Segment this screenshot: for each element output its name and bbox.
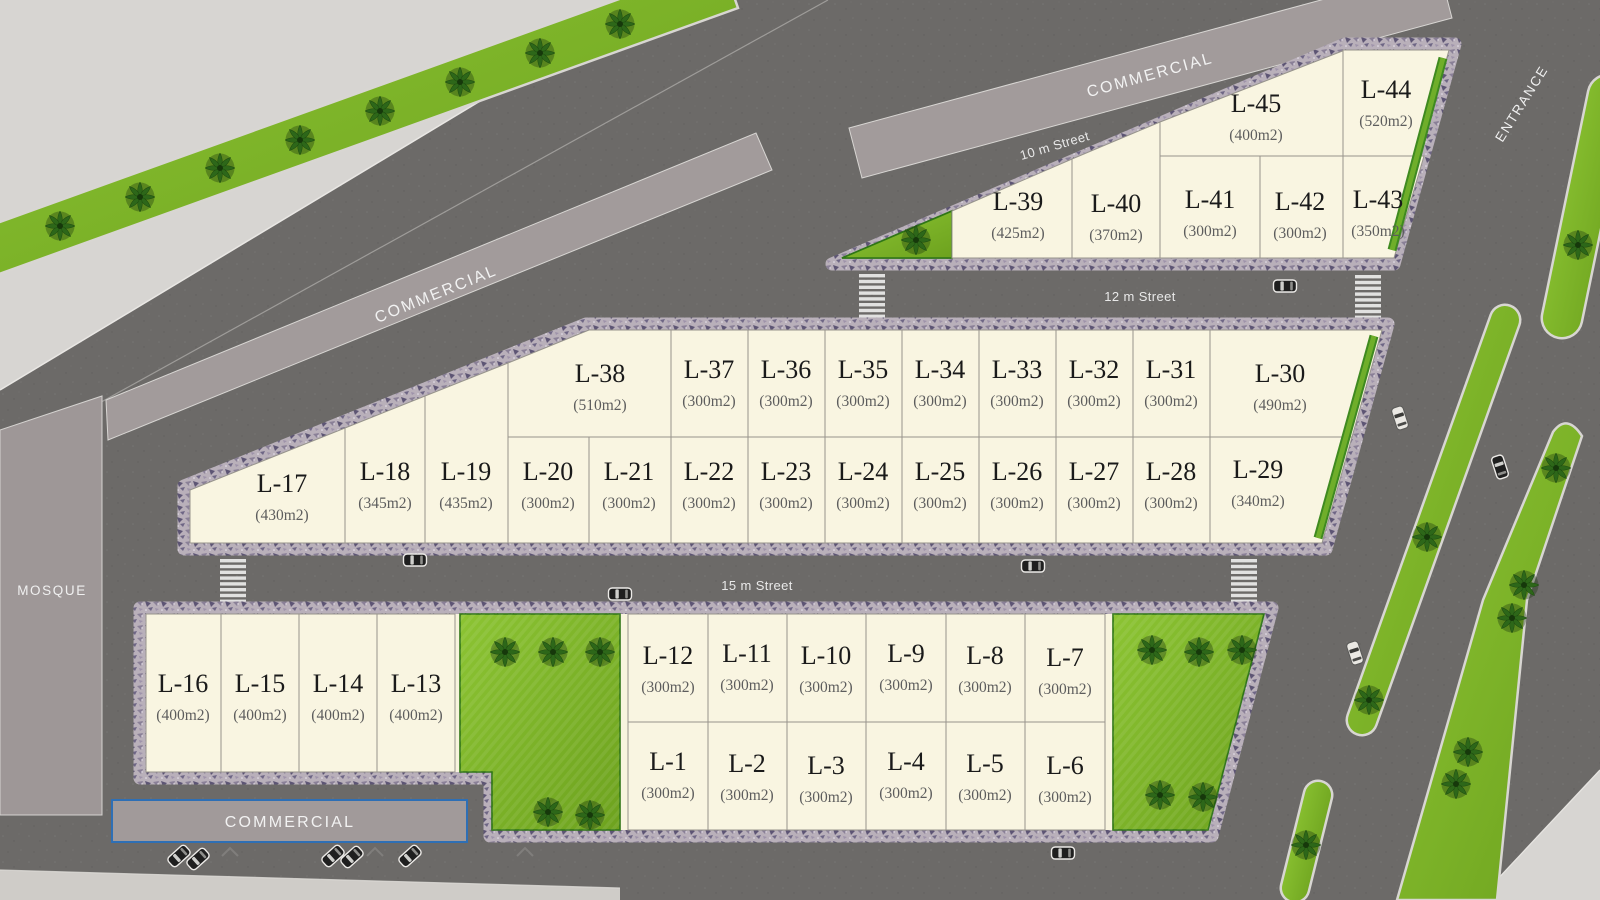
lot-l1-name: L-1	[649, 747, 687, 776]
lot-l7-name: L-7	[1046, 643, 1084, 672]
lot-l4[interactable]	[866, 722, 946, 830]
lot-l45-name: L-45	[1231, 89, 1282, 118]
car-icon	[1052, 847, 1075, 859]
lot-l28[interactable]	[1133, 437, 1210, 543]
lot-l4-name: L-4	[887, 747, 925, 776]
lot-l28-name: L-28	[1146, 457, 1197, 486]
lot-l8-name: L-8	[966, 641, 1004, 670]
lot-l25-name: L-25	[915, 457, 966, 486]
lot-l27[interactable]	[1056, 437, 1133, 543]
lot-l5-area: (300m2)	[958, 787, 1011, 804]
lot-l9-name: L-9	[887, 639, 925, 668]
lot-l16-name: L-16	[158, 669, 209, 698]
lot-l38-area: (510m2)	[573, 397, 626, 414]
lot-l9-area: (300m2)	[879, 677, 932, 694]
lot-l24-area: (300m2)	[836, 495, 889, 512]
lot-l25-area: (300m2)	[913, 495, 966, 512]
lot-l18-area: (345m2)	[358, 495, 411, 512]
lot-l28-area: (300m2)	[1144, 495, 1197, 512]
lot-l20-name: L-20	[523, 457, 574, 486]
lot-l20-area: (300m2)	[521, 495, 574, 512]
lot-l2-area: (300m2)	[720, 787, 773, 804]
lot-l11-name: L-11	[722, 639, 772, 668]
lot-l34-name: L-34	[915, 355, 966, 384]
lot-l5-name: L-5	[966, 749, 1004, 778]
lot-l21-name: L-21	[604, 457, 655, 486]
lot-l36-name: L-36	[761, 355, 812, 384]
lot-l33-area: (300m2)	[990, 393, 1043, 410]
lot-l20[interactable]	[508, 437, 589, 543]
lot-l39-name: L-39	[993, 187, 1044, 216]
lot-l30-name: L-30	[1255, 359, 1306, 388]
lot-l10-area: (300m2)	[799, 679, 852, 696]
lot-l4-area: (300m2)	[879, 785, 932, 802]
lot-l7-area: (300m2)	[1038, 681, 1091, 698]
lot-l36-area: (300m2)	[759, 393, 812, 410]
lot-l30-area: (490m2)	[1253, 397, 1306, 414]
tree-icon	[901, 225, 931, 255]
site-plan: MOSQUE COMMERCIAL COMMERCIAL 10 m Street…	[0, 0, 1600, 900]
lot-l17-name: L-17	[257, 469, 308, 498]
lot-l26-name: L-26	[992, 457, 1043, 486]
lot-l22-area: (300m2)	[682, 495, 735, 512]
lot-l1[interactable]	[628, 722, 708, 830]
lot-l35-name: L-35	[838, 355, 889, 384]
lot-l23-name: L-23	[761, 457, 812, 486]
lot-l31-name: L-31	[1146, 355, 1197, 384]
lot-l44-name: L-44	[1361, 75, 1412, 104]
lot-l16-area: (400m2)	[156, 707, 209, 724]
lot-l15-area: (400m2)	[233, 707, 286, 724]
lot-l11[interactable]	[708, 614, 787, 722]
lot-l12-area: (300m2)	[641, 679, 694, 696]
commercial-bottom-label: COMMERCIAL	[225, 814, 355, 831]
lot-l42-area: (300m2)	[1273, 225, 1326, 242]
lot-l14-area: (400m2)	[311, 707, 364, 724]
lot-l44-area: (520m2)	[1359, 113, 1412, 130]
lot-l29-name: L-29	[1233, 455, 1284, 484]
lot-l40-area: (370m2)	[1089, 227, 1142, 244]
lot-l13-name: L-13	[391, 669, 442, 698]
lot-l43-name: L-43	[1353, 185, 1404, 214]
lot-l22[interactable]	[671, 437, 748, 543]
lot-l19-area: (435m2)	[439, 495, 492, 512]
lot-l24-name: L-24	[838, 457, 889, 486]
lot-l33-name: L-33	[992, 355, 1043, 384]
lot-l13-area: (400m2)	[389, 707, 442, 724]
lot-l18-name: L-18	[360, 457, 411, 486]
lot-l14-name: L-14	[313, 669, 364, 698]
lot-l27-name: L-27	[1069, 457, 1120, 486]
lot-l27-area: (300m2)	[1067, 495, 1120, 512]
lot-l29-area: (340m2)	[1231, 493, 1284, 510]
lot-l32-name: L-32	[1069, 355, 1120, 384]
lot-l38-name: L-38	[575, 359, 626, 388]
lot-l8-area: (300m2)	[958, 679, 1011, 696]
lot-l37-name: L-37	[684, 355, 735, 384]
lot-l11-area: (300m2)	[720, 677, 773, 694]
car-icon	[404, 554, 427, 566]
lot-l34-area: (300m2)	[913, 393, 966, 410]
lot-l32-area: (300m2)	[1067, 393, 1120, 410]
lot-l25[interactable]	[902, 437, 979, 543]
lot-l40-name: L-40	[1091, 189, 1142, 218]
lot-l1-area: (300m2)	[641, 785, 694, 802]
lot-l22-name: L-22	[684, 457, 735, 486]
lot-l10-name: L-10	[801, 641, 852, 670]
lot-l23-area: (300m2)	[759, 495, 812, 512]
lot-l21-area: (300m2)	[602, 495, 655, 512]
lot-l2-name: L-2	[728, 749, 766, 778]
lot-l26-area: (300m2)	[990, 495, 1043, 512]
mosque-label: MOSQUE	[17, 583, 87, 598]
lot-l3-name: L-3	[807, 751, 845, 780]
lot-l6-area: (300m2)	[1038, 789, 1091, 806]
lot-l6-name: L-6	[1046, 751, 1084, 780]
lot-l45-area: (400m2)	[1229, 127, 1282, 144]
lot-l31-area: (300m2)	[1144, 393, 1197, 410]
lot-l42-name: L-42	[1275, 187, 1326, 216]
lot-l3-area: (300m2)	[799, 789, 852, 806]
lot-l43-area: (350m2)	[1351, 223, 1404, 240]
lot-l41-name: L-41	[1185, 185, 1236, 214]
lot-l41-area: (300m2)	[1183, 223, 1236, 240]
lot-l17-area: (430m2)	[255, 507, 308, 524]
lot-l15-name: L-15	[235, 669, 286, 698]
lot-l37-area: (300m2)	[682, 393, 735, 410]
lot-l12-name: L-12	[643, 641, 694, 670]
lot-l23[interactable]	[748, 437, 825, 543]
mosque-building	[0, 396, 102, 815]
car-icon	[1274, 280, 1297, 292]
lot-l26[interactable]	[979, 437, 1056, 543]
car-icon	[1022, 560, 1045, 572]
street-15m-label: 15 m Street	[721, 578, 793, 593]
street-12m-label: 12 m Street	[1104, 289, 1176, 304]
lot-l21[interactable]	[589, 437, 671, 543]
car-icon	[609, 588, 632, 600]
lot-l24[interactable]	[825, 437, 902, 543]
lot-l19-name: L-19	[441, 457, 492, 486]
lot-l35-area: (300m2)	[836, 393, 889, 410]
lot-l9[interactable]	[866, 614, 946, 722]
lot-l39-area: (425m2)	[991, 225, 1044, 242]
